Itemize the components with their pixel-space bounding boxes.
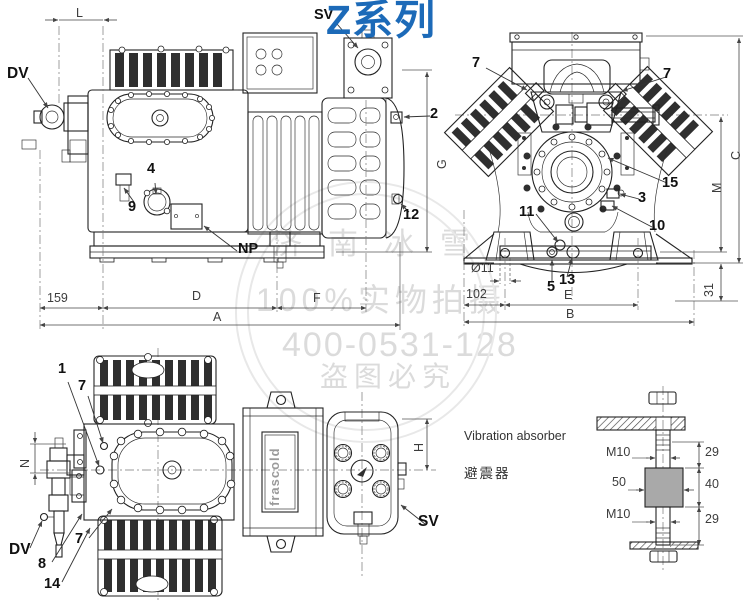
front-callout-7-right: 7 xyxy=(663,67,671,82)
absorber-title-en: Vibration absorber xyxy=(464,430,566,443)
side-callout-9: 9 xyxy=(128,200,136,215)
absorber-dim-29-bottom: 29 xyxy=(705,513,719,526)
side-dv-port-label: DV xyxy=(7,66,29,82)
top-callout-7-lower: 7 xyxy=(75,532,83,547)
absorber-dim-40: 40 xyxy=(705,478,719,491)
side-callout-12: 12 xyxy=(403,208,419,223)
side-view-dimensions xyxy=(40,20,432,330)
front-callout-15: 15 xyxy=(662,176,678,191)
brand-logo: frascold xyxy=(267,447,282,506)
front-callout-3: 3 xyxy=(638,191,646,206)
absorber-title-zh: 避震器 xyxy=(464,467,511,481)
top-callout-1: 1 xyxy=(58,362,66,377)
drawing-canvas xyxy=(0,0,752,603)
side-np-label: NP xyxy=(238,242,258,257)
front-dim-d11: Ø11 xyxy=(471,262,494,275)
front-callout-5: 5 xyxy=(547,280,555,295)
absorber-thread-bottom: M10 xyxy=(606,508,630,521)
upper-head-fins xyxy=(94,354,216,427)
side-dim-a: A xyxy=(213,311,221,324)
front-callout-11: 11 xyxy=(519,205,534,220)
front-dim-102: 102 xyxy=(466,288,487,301)
top-callout-7-upper: 7 xyxy=(78,379,86,394)
cover-bolts xyxy=(108,91,214,144)
side-dim-159: 159 xyxy=(47,292,68,305)
front-callout-10: 10 xyxy=(649,219,665,234)
technical-drawing-page: 济南冰雪 100%实物拍摄 400-0531-128 盗图必究 xyxy=(0,0,752,603)
top-sv-port-label: SV xyxy=(418,514,439,530)
absorber-thread-top: M10 xyxy=(606,446,630,459)
absorber-block-width: 50 xyxy=(612,476,626,489)
side-callout-4: 4 xyxy=(147,162,155,177)
side-view-drawing xyxy=(22,20,432,330)
right-cylinder-bank xyxy=(604,67,713,176)
cover-bolts-top-view xyxy=(110,428,235,514)
front-callout-7-left: 7 xyxy=(472,56,480,71)
side-dim-l: L xyxy=(76,7,83,20)
lower-head-fins xyxy=(98,516,222,596)
front-dim-e: E xyxy=(564,289,572,302)
motor-end-housing xyxy=(322,98,404,238)
motor-cooling-ribs xyxy=(248,112,322,234)
front-dim-m: M xyxy=(711,183,724,193)
discharge-valve xyxy=(34,103,88,131)
cylinder-head-fins xyxy=(110,46,233,90)
front-dim-b: B xyxy=(566,308,574,321)
top-view-drawing xyxy=(30,348,436,602)
absorber-dim-29-top: 29 xyxy=(705,446,719,459)
front-dim-31: 31 xyxy=(703,283,716,297)
top-dim-n: N xyxy=(19,459,32,468)
side-dim-g: G xyxy=(436,159,449,169)
terminal-box xyxy=(243,33,317,93)
end-bell xyxy=(327,412,406,544)
top-dv-port-label: DV xyxy=(9,542,31,558)
page-title: Z系列 xyxy=(326,0,436,41)
side-dim-f: F xyxy=(313,292,321,305)
top-dim-h: H xyxy=(413,443,426,452)
mounting-feet xyxy=(464,232,692,273)
top-callout-14: 14 xyxy=(44,577,60,592)
front-view-drawing xyxy=(445,32,743,326)
front-dim-c: C xyxy=(730,151,743,160)
front-callout-13: 13 xyxy=(559,273,575,288)
motor-housing-top-view xyxy=(243,392,323,552)
top-callout-8: 8 xyxy=(38,557,46,572)
side-callout-2: 2 xyxy=(430,107,438,122)
side-dim-d: D xyxy=(192,290,201,303)
